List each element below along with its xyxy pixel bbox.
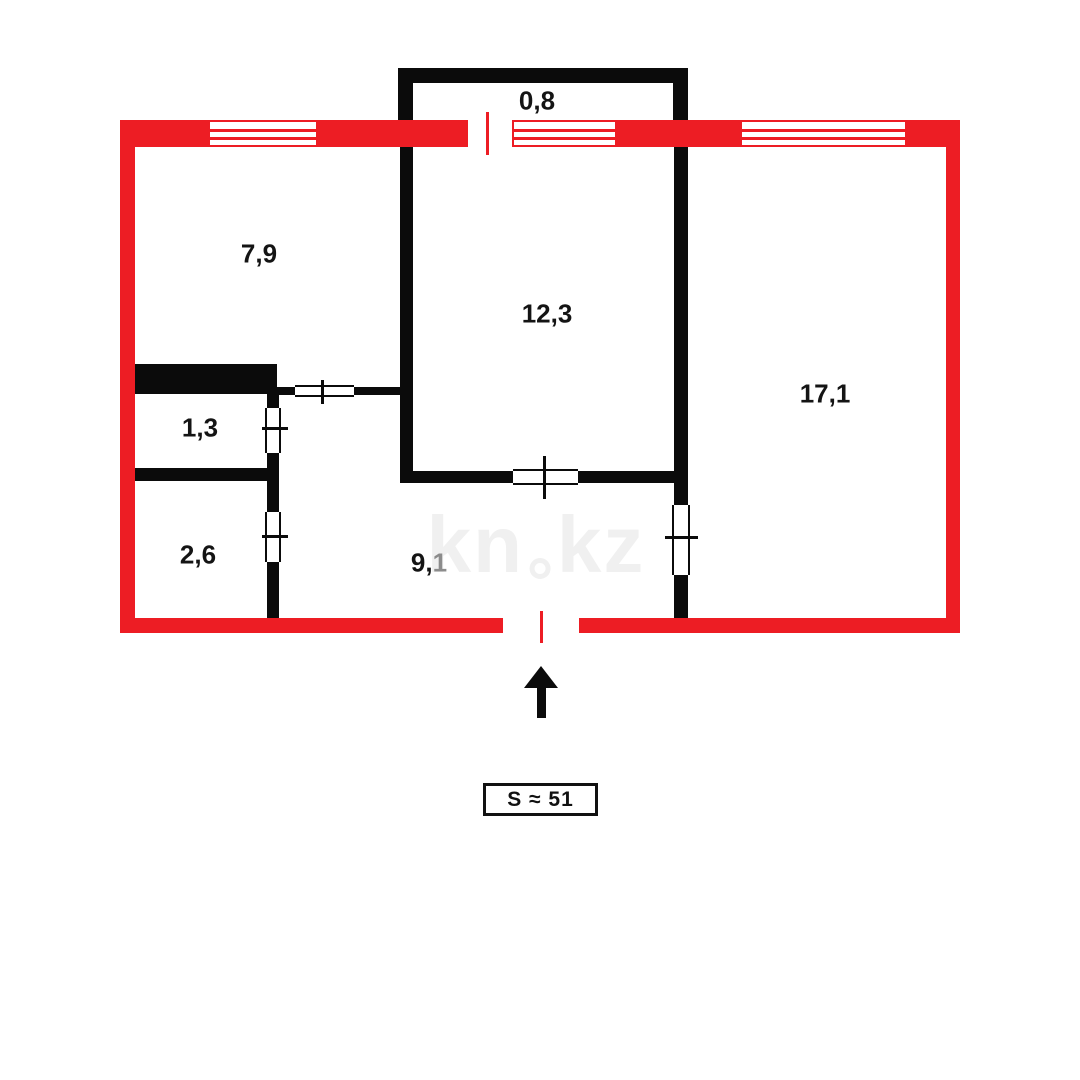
door-opening-toilet xyxy=(265,408,281,453)
room-label-toilet: 1,3 xyxy=(182,413,218,444)
room-label-hallway: 9,1 xyxy=(411,548,447,579)
balcony-wall-right xyxy=(673,68,688,120)
window-balcony xyxy=(512,120,617,147)
hallway-area-prefix: 9, xyxy=(411,548,433,578)
window-top-left xyxy=(208,120,318,147)
floor-plan: kn kz 0,8 7,9 12,3 xyxy=(0,0,1080,1080)
door-opening-top-left-room xyxy=(295,385,354,397)
window-glass-line xyxy=(210,137,316,140)
watermark-dot-icon xyxy=(530,558,551,579)
wall-center-room-left xyxy=(400,147,413,483)
hallway-area-suffix: 1 xyxy=(433,548,447,578)
watermark: kn kz xyxy=(427,505,646,585)
total-area-box: S ≈ 51 xyxy=(483,783,598,816)
north-arrow-stem xyxy=(537,688,546,718)
door-tick-center-room xyxy=(543,456,546,499)
room-label-center-room: 12,3 xyxy=(522,299,573,330)
door-tick-bathroom xyxy=(262,535,288,538)
room-label-balcony: 0,8 xyxy=(519,86,555,117)
room-label-top-left-room: 7,9 xyxy=(241,239,277,270)
room-label-right-room: 17,1 xyxy=(800,379,851,410)
door-tick-entrance xyxy=(540,611,543,643)
wall-closet-block xyxy=(135,364,277,394)
room-label-bathroom: 2,6 xyxy=(180,540,216,571)
outer-wall-left xyxy=(120,120,135,633)
window-glass-line xyxy=(514,137,615,140)
door-tick-right-room xyxy=(665,536,698,539)
window-glass-line xyxy=(742,129,905,132)
total-area-label: S ≈ 51 xyxy=(507,788,574,812)
north-arrow-head xyxy=(524,666,558,688)
door-tick-balcony xyxy=(486,112,489,155)
door-opening-right-room xyxy=(672,505,690,575)
window-glass-line xyxy=(742,137,905,140)
window-top-right xyxy=(740,120,907,147)
door-opening-balcony xyxy=(468,120,512,147)
balcony-wall-top xyxy=(398,68,688,83)
watermark-text-right: kz xyxy=(557,505,646,585)
window-glass-line xyxy=(210,129,316,132)
wall-toilet-bathroom-divider xyxy=(135,468,279,481)
north-arrow-icon xyxy=(524,666,558,718)
door-tick-toilet xyxy=(262,427,288,430)
balcony-wall-left xyxy=(398,68,413,120)
door-tick-top-left-room xyxy=(321,380,324,404)
outer-wall-right xyxy=(946,120,960,633)
window-glass-line xyxy=(514,129,615,132)
